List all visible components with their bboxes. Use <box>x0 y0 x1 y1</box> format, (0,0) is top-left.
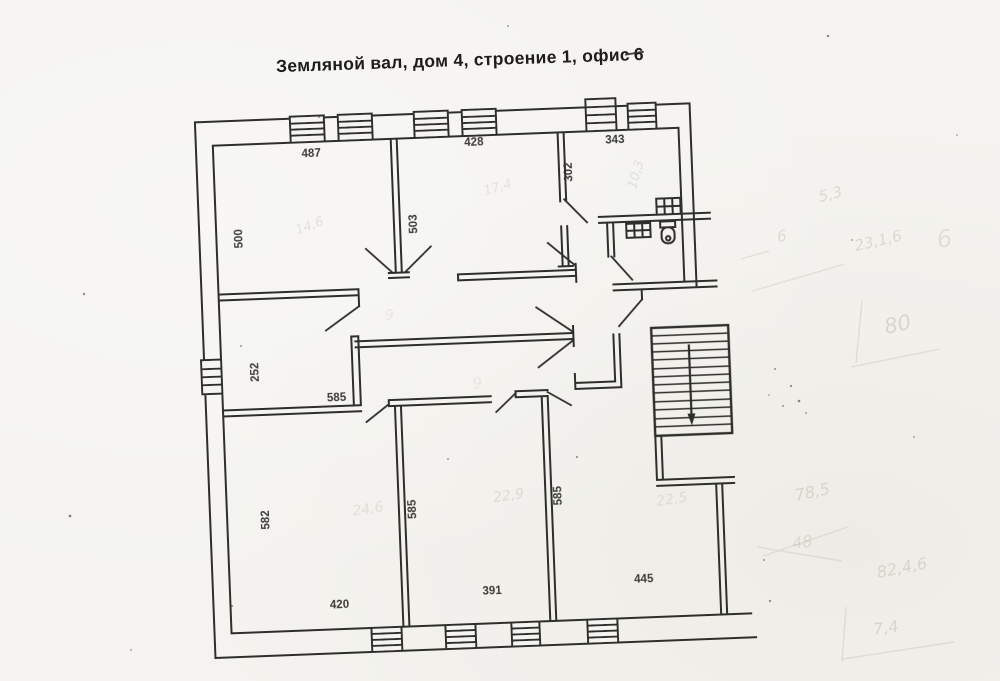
pencil-note-corridor-a: 9 <box>384 306 394 324</box>
door-swing-252 <box>325 306 360 330</box>
door-swing-wc <box>611 256 632 281</box>
floor-plan-drawing: 487 428 343 500 503 302 252 585 582 585 … <box>192 94 756 658</box>
dim-label-487: 487 <box>301 148 321 161</box>
margin-note-top-a: 5,3 <box>817 183 845 206</box>
dim-label-391: 391 <box>482 585 502 598</box>
margin-note-bottom-c: 82,4,6 <box>875 554 929 582</box>
scan-specks <box>69 25 958 651</box>
pencil-note-room391: 22,9 <box>492 486 525 506</box>
dim-label-445: 445 <box>634 573 654 586</box>
dim-label-585-left: 585 <box>407 499 420 519</box>
dim-label-252: 252 <box>249 362 262 382</box>
dim-label-585-right: 585 <box>552 485 565 505</box>
pencil-note-room487: 14,6 <box>293 214 325 238</box>
pencil-note-corridor-b: 9 <box>472 374 484 393</box>
margin-note-bottom-d: 7,4 <box>872 617 900 639</box>
dim-label-500: 500 <box>233 229 246 249</box>
partition-487-428 <box>384 138 409 278</box>
dim-label-585-corridor: 585 <box>327 392 347 405</box>
margin-note-80: 80 <box>882 310 913 339</box>
wc-walls <box>599 213 717 301</box>
pencil-strokes <box>741 251 954 662</box>
window-icon-left <box>201 360 222 395</box>
margin-note-top-c: 23,1,6 <box>853 227 904 255</box>
margin-note-top-d: 6 <box>935 224 954 254</box>
margin-pencil-notes: 5,3 6 23,1,6 6 80 78,5 48 82,4,6 7,4 <box>741 183 954 662</box>
toilet-icon <box>660 221 676 244</box>
dim-label-343: 343 <box>605 134 625 147</box>
pencil-note-room582: 24,6 <box>351 499 384 519</box>
margin-note-bottom-a: 78,5 <box>793 479 832 505</box>
walls-below-stair <box>655 433 739 617</box>
dim-label-420: 420 <box>330 599 350 612</box>
corridor-walls <box>220 324 622 416</box>
door-swing-stairhall <box>618 299 643 326</box>
dim-label-503: 503 <box>408 214 421 234</box>
pencil-note-room445: 22,5 <box>655 490 688 510</box>
partition-391-445 <box>515 390 556 622</box>
margin-note-top-b: 6 <box>776 227 789 246</box>
sink-icon <box>656 198 681 215</box>
wall-room487-bottom <box>219 289 360 311</box>
stair-direction-arrow <box>687 413 695 425</box>
dim-label-582: 582 <box>260 510 273 530</box>
door-swing-343 <box>564 198 587 223</box>
scanned-floor-plan: 487 428 343 500 503 302 252 585 582 585 … <box>0 0 1000 681</box>
double-door-swing-corridor <box>536 306 574 367</box>
staircase-icon <box>651 325 732 436</box>
pencil-note-room428: 17,4 <box>482 177 514 199</box>
pencil-note-room343: 10,3 <box>625 159 647 191</box>
sink-icon-2 <box>626 223 651 238</box>
dim-label-428: 428 <box>464 136 484 149</box>
dim-label-302: 302 <box>563 162 576 182</box>
door-swings-upper <box>366 246 432 273</box>
